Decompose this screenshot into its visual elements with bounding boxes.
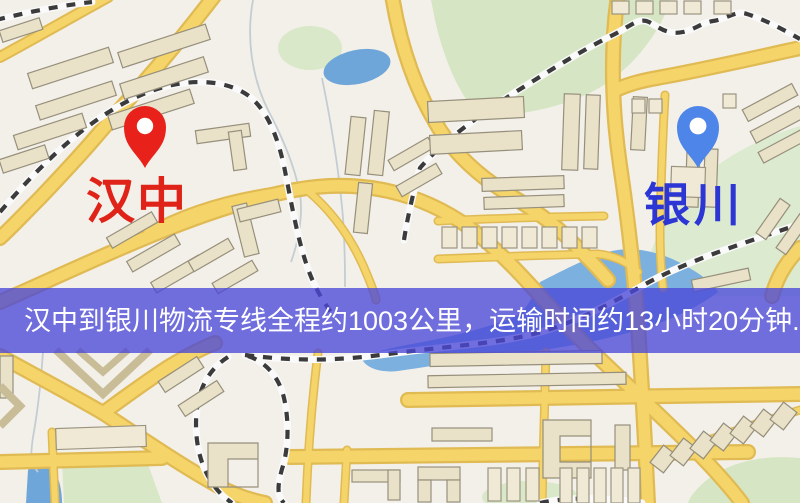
map-background: [0, 0, 800, 503]
map-canvas[interactable]: 汉中到银川物流专线全程约1003公里，运输时间约13小时20分钟. 汉中 银川: [0, 0, 800, 503]
info-banner: 汉中到银川物流专线全程约1003公里，运输时间约13小时20分钟.: [0, 288, 800, 353]
origin-pin-hole: [137, 118, 153, 134]
origin-label: 汉中: [86, 175, 188, 229]
destination-pin-hole: [690, 118, 707, 135]
banner-text: 汉中到银川物流专线全程约1003公里，运输时间约13小时20分钟.: [24, 306, 800, 336]
destination-label: 银川: [644, 179, 744, 231]
